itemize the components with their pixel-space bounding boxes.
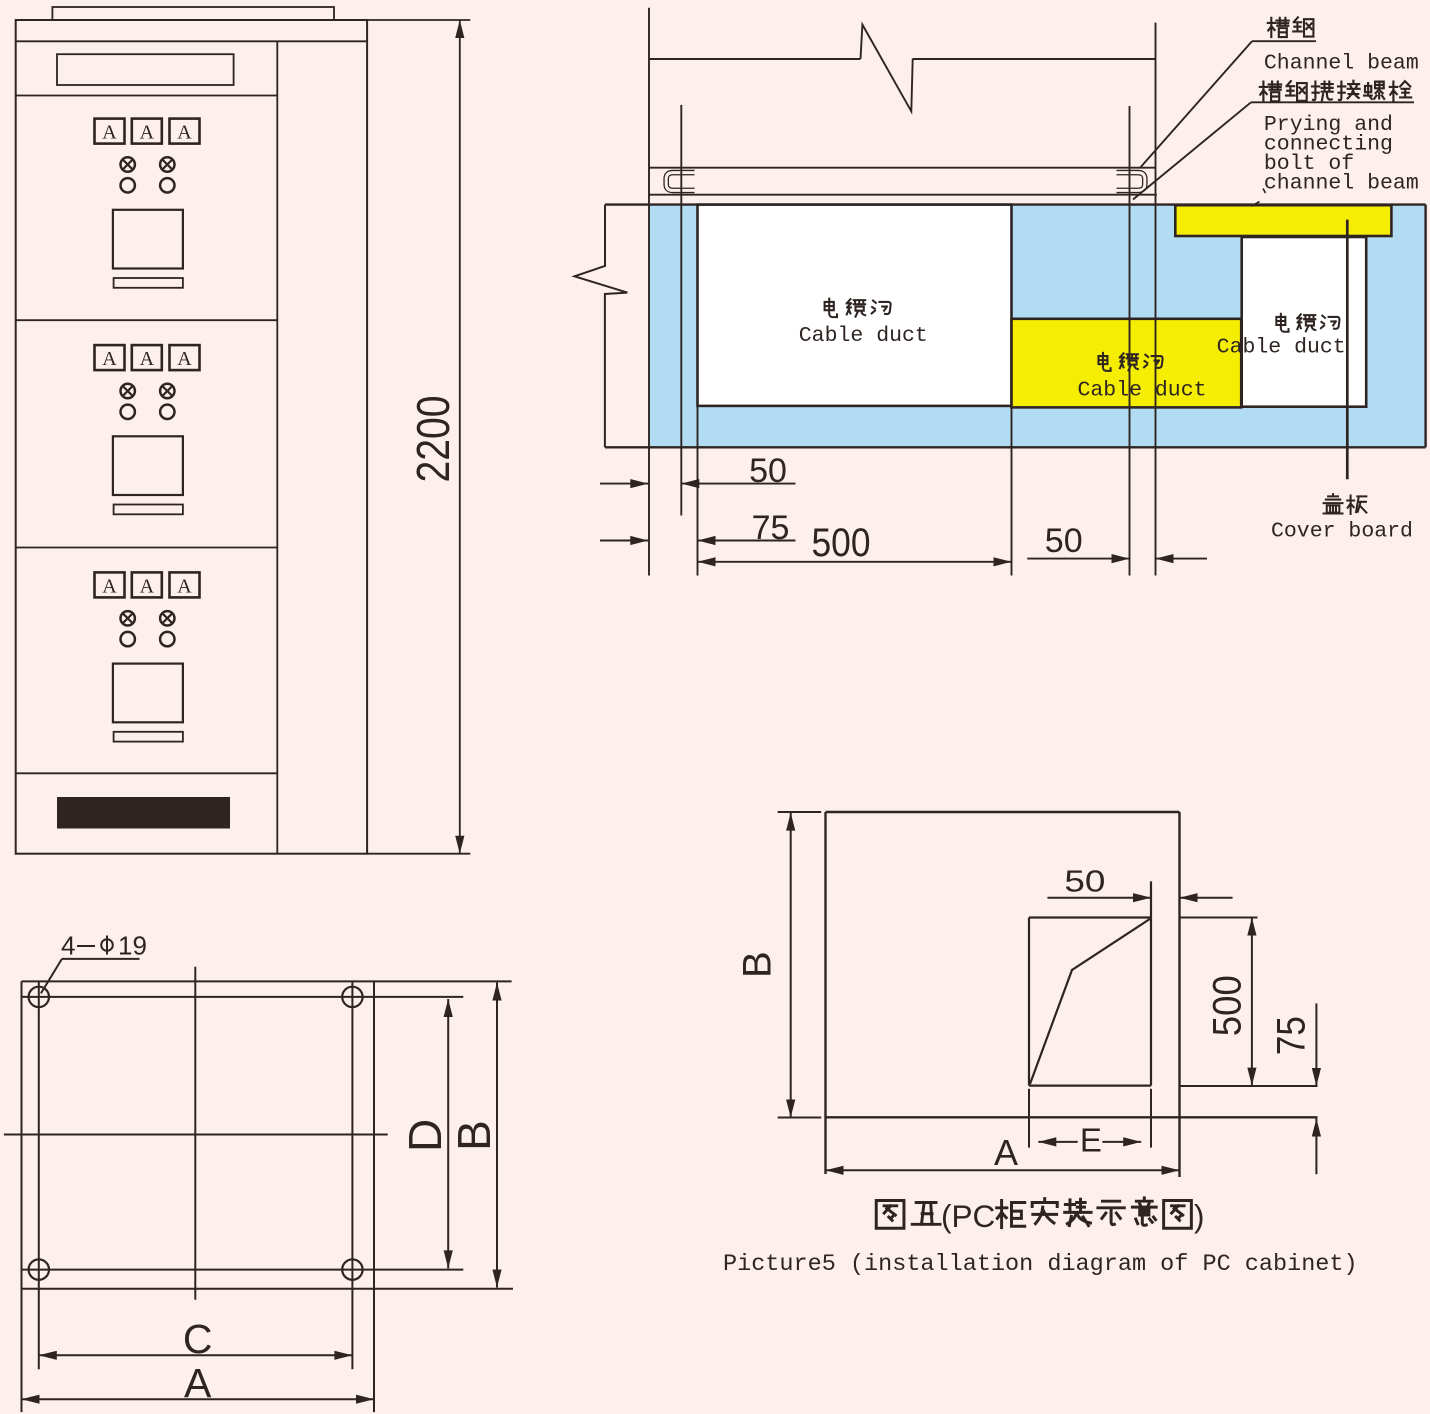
svg-text:channel beam: channel beam: [1264, 172, 1419, 196]
svg-text:A: A: [177, 122, 192, 144]
svg-text:A: A: [102, 122, 117, 144]
svg-text:19: 19: [118, 931, 147, 961]
svg-text:A: A: [994, 1132, 1018, 1173]
svg-text:E: E: [1080, 1122, 1102, 1159]
svg-text:D: D: [399, 1119, 451, 1152]
svg-text:Cable duct: Cable duct: [1217, 336, 1346, 360]
svg-text:B: B: [448, 1120, 500, 1151]
svg-text:2200: 2200: [407, 396, 459, 483]
svg-text:A: A: [140, 122, 155, 144]
svg-text:A: A: [177, 575, 192, 597]
svg-text:500: 500: [1205, 975, 1249, 1036]
svg-text:Channel beam: Channel beam: [1264, 52, 1419, 76]
svg-text:500: 500: [812, 521, 871, 565]
svg-text:Cable duct: Cable duct: [799, 324, 928, 348]
svg-text:4: 4: [61, 931, 75, 961]
svg-text:Cable duct: Cable duct: [1077, 379, 1206, 403]
svg-text:C: C: [183, 1316, 213, 1362]
svg-text:A: A: [140, 575, 155, 597]
svg-text:B: B: [736, 951, 780, 978]
svg-text:50: 50: [1064, 864, 1105, 899]
svg-text:A: A: [177, 348, 192, 370]
svg-text:A: A: [184, 1360, 212, 1406]
svg-text:A: A: [140, 348, 155, 370]
svg-text:Picture5 (installation diagram: Picture5 (installation diagram of PC cab…: [723, 1251, 1358, 1278]
svg-text:Cover board: Cover board: [1271, 520, 1413, 544]
svg-text:(PC: (PC: [941, 1198, 995, 1234]
svg-text:75: 75: [1269, 1016, 1313, 1055]
svg-text:50: 50: [1045, 522, 1083, 560]
svg-text:A: A: [102, 348, 117, 370]
svg-text:): ): [1194, 1198, 1205, 1234]
svg-text:A: A: [102, 575, 117, 597]
